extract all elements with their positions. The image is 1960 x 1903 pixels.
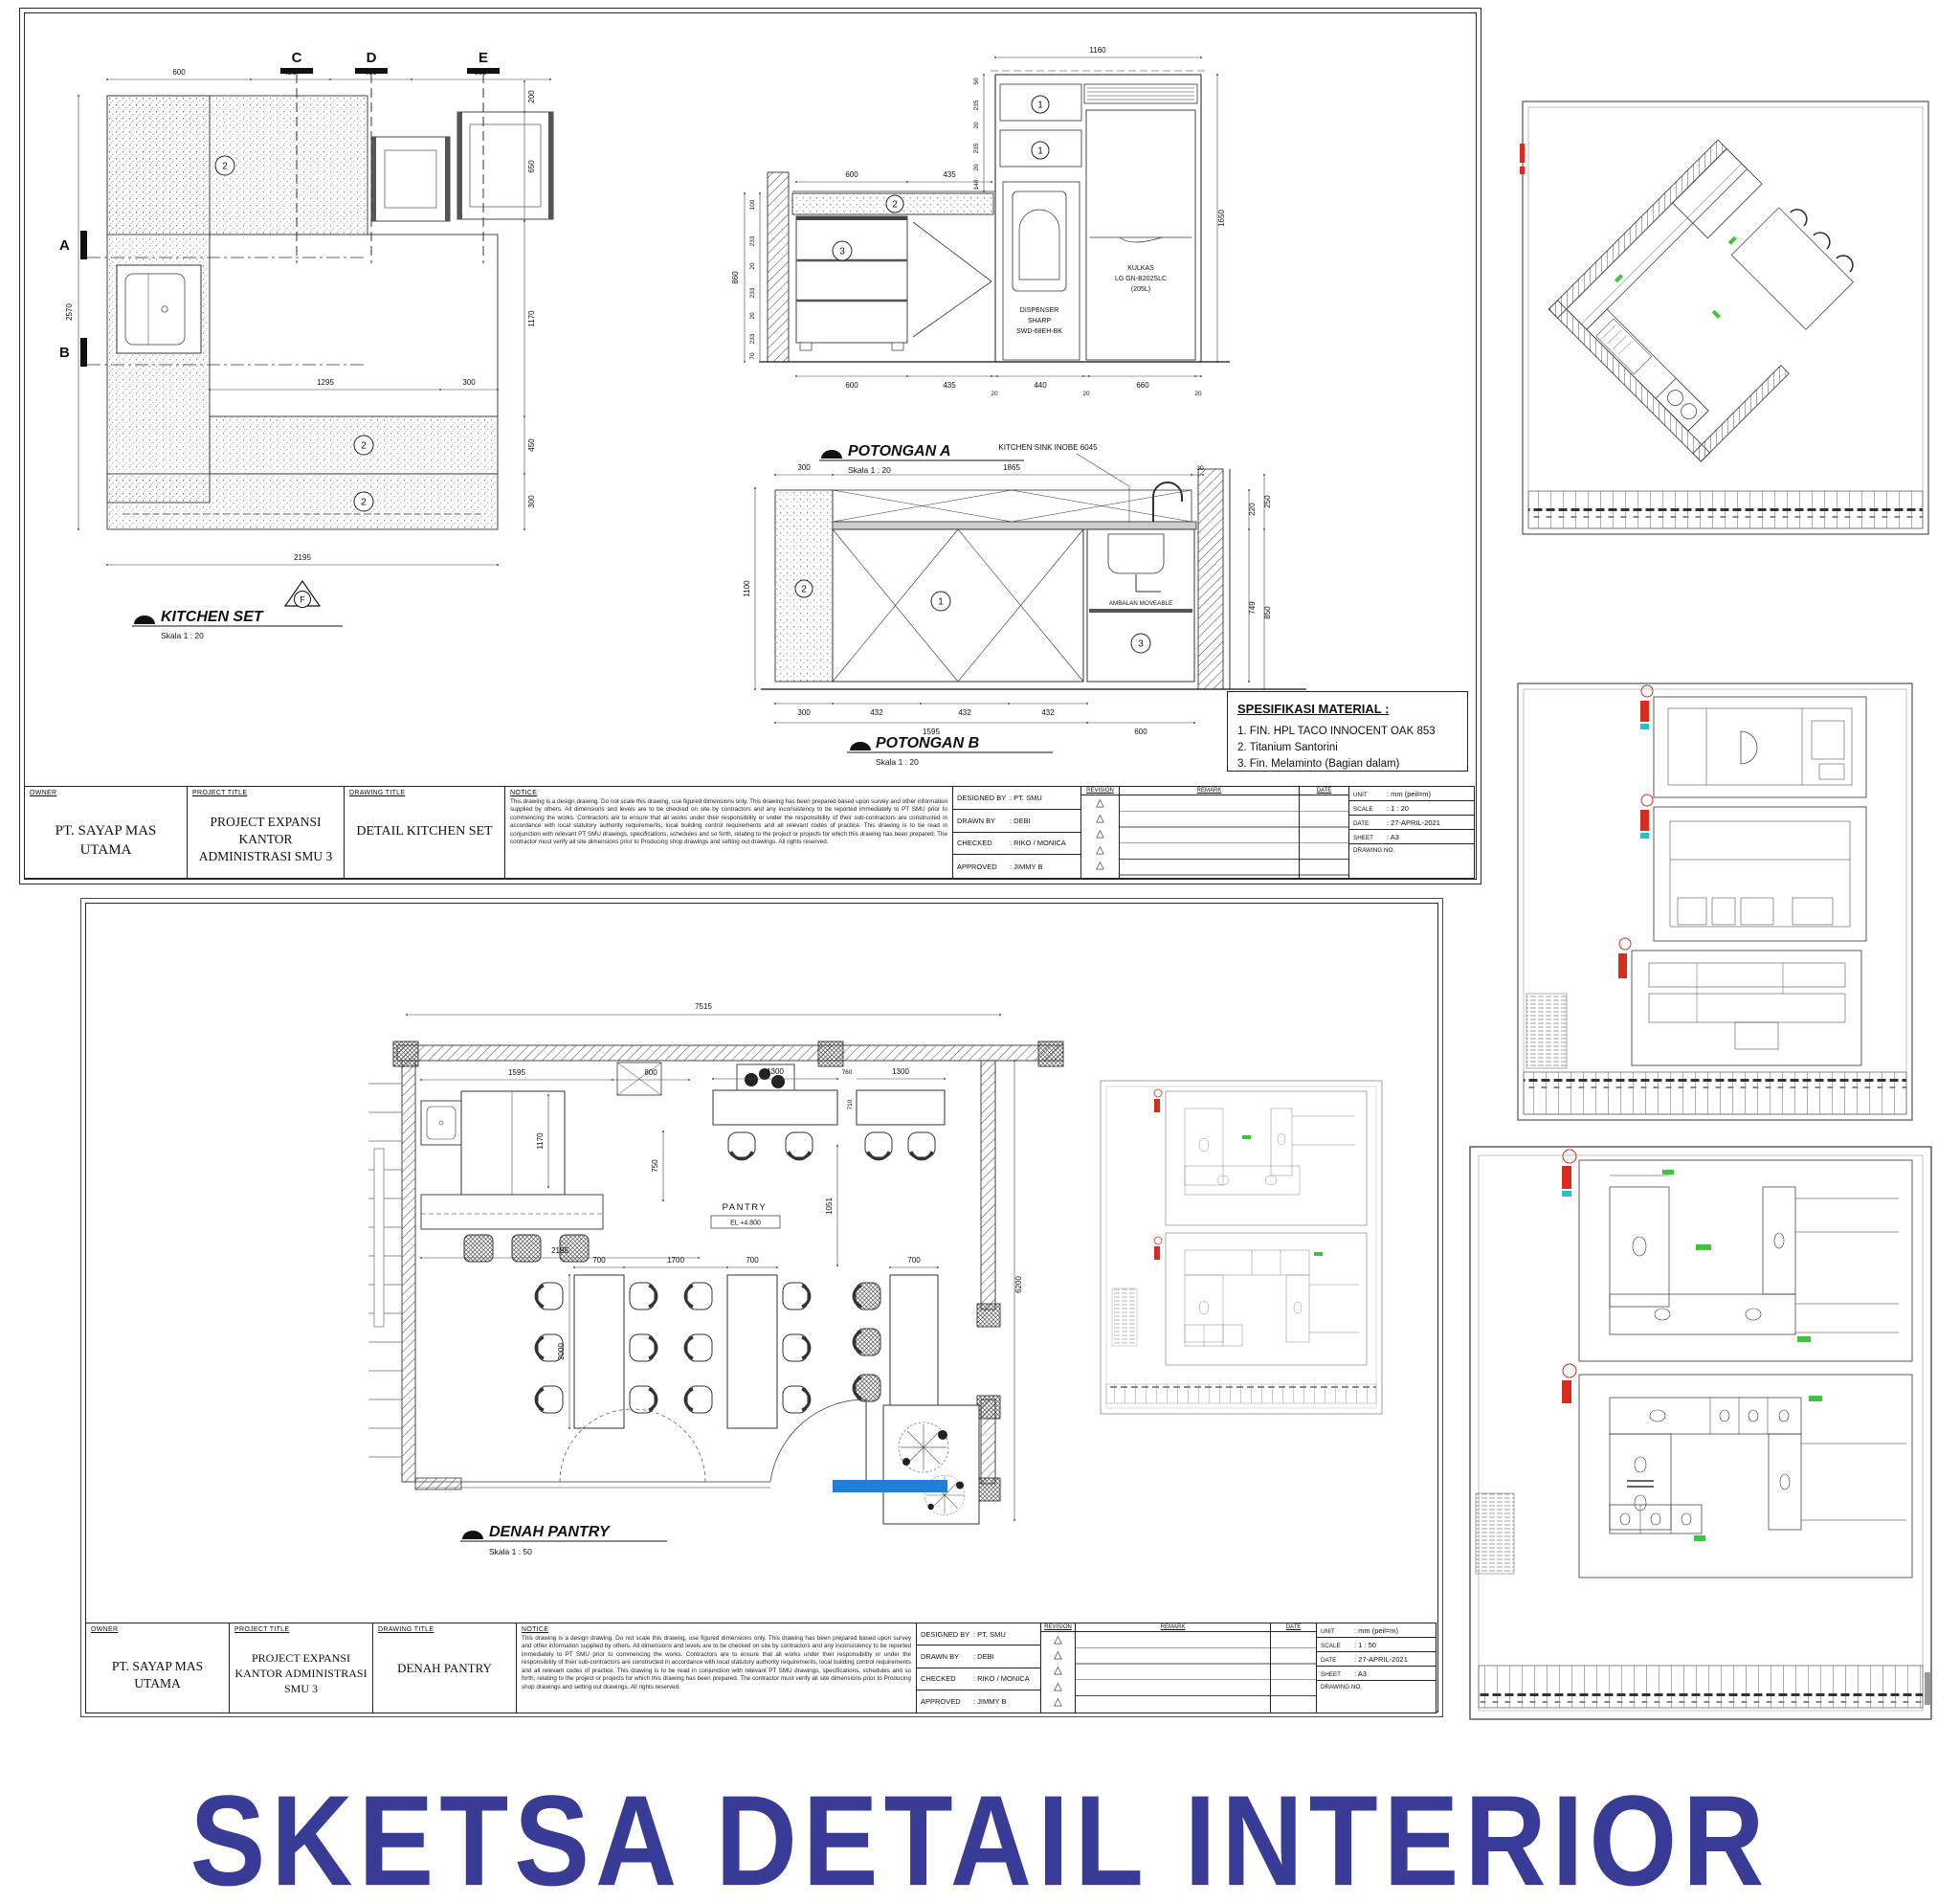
view-title-dot-icon bbox=[134, 616, 155, 624]
svg-text:650: 650 bbox=[527, 160, 536, 173]
project-title-label: PROJECT TITLE bbox=[192, 790, 339, 796]
revision-triangle-icon: △ bbox=[1081, 842, 1119, 858]
revision-triangle-icon: △ bbox=[1081, 826, 1119, 841]
signature-column: DESIGNED BY: PT. SMU DRAWN BY: DEBI CHEC… bbox=[953, 787, 1081, 878]
svg-text:700: 700 bbox=[746, 1256, 759, 1265]
kitchen-counter-group bbox=[421, 1091, 603, 1262]
drawing-title-label: DRAWING TITLE bbox=[349, 790, 500, 796]
view-title-dot-icon bbox=[850, 742, 871, 750]
svg-text:235: 235 bbox=[973, 100, 980, 110]
spesifikasi-item: 1. FIN. HPL TACO INNOCENT OAK 853 bbox=[1237, 724, 1458, 740]
svg-text:1170: 1170 bbox=[527, 310, 536, 327]
svg-text:435: 435 bbox=[283, 68, 297, 77]
remark-column: REMARK bbox=[1076, 1623, 1271, 1713]
micro-text-box bbox=[1526, 994, 1567, 1068]
denah-pantry-plan-view: PANTRY EL +4.800 7515 1595 800 1300 bbox=[330, 988, 1096, 1562]
svg-text:50: 50 bbox=[973, 78, 980, 85]
revision-column: REVISION △△ △△ △ bbox=[1041, 1623, 1076, 1713]
svg-text:1100: 1100 bbox=[743, 580, 751, 597]
svg-text:1295: 1295 bbox=[317, 378, 334, 387]
svg-text:LG GN-B202SLC: LG GN-B202SLC bbox=[1115, 276, 1167, 282]
right-wall bbox=[1198, 469, 1223, 689]
window-mullions bbox=[368, 1084, 402, 1457]
svg-text:PANTRY: PANTRY bbox=[723, 1202, 768, 1213]
svg-text:432: 432 bbox=[1041, 708, 1055, 717]
svg-text:Skala 1 : 50: Skala 1 : 50 bbox=[489, 1547, 532, 1556]
signature-column: DESIGNED BY: PT. SMU DRAWN BY: DEBI CHEC… bbox=[917, 1623, 1041, 1713]
section-marker-f: F bbox=[285, 581, 320, 608]
svg-text:6200: 6200 bbox=[1014, 1276, 1023, 1293]
bar-counters bbox=[713, 1090, 945, 1159]
sink-symbol bbox=[117, 265, 201, 353]
svg-text:2: 2 bbox=[361, 498, 367, 508]
poster-canvas: C D E A B 2 2 2 bbox=[0, 0, 1960, 1903]
project-title-line2: KANTOR ADMINISTRASI SMU 3 bbox=[192, 831, 339, 865]
revision-column: REVISION △ △ △ △ △ bbox=[1081, 787, 1120, 878]
svg-text:1300: 1300 bbox=[767, 1067, 784, 1076]
upper-cabinets bbox=[371, 112, 553, 221]
svg-text:F: F bbox=[300, 595, 305, 605]
poster-title: SKETSA DETAIL INTERIOR bbox=[190, 1767, 1771, 1903]
svg-text:2195: 2195 bbox=[551, 1246, 568, 1255]
title-strip bbox=[1524, 1072, 1906, 1114]
drawing-title-value: DETAIL KITCHEN SET bbox=[349, 823, 500, 841]
left-base-cabinet bbox=[768, 172, 995, 362]
svg-text:D: D bbox=[367, 50, 377, 66]
titleblock-sheet2: OWNER PT. SAYAP MAS UTAMA PROJECT TITLE … bbox=[85, 1623, 1437, 1713]
svg-text:300: 300 bbox=[527, 495, 536, 508]
svg-text:20: 20 bbox=[749, 262, 756, 270]
svg-text:1650: 1650 bbox=[1217, 210, 1226, 227]
svg-text:EL +4.800: EL +4.800 bbox=[730, 1220, 761, 1227]
svg-text:435: 435 bbox=[943, 381, 956, 390]
countertop bbox=[833, 522, 1196, 529]
svg-text:710: 710 bbox=[847, 1099, 854, 1109]
svg-text:235: 235 bbox=[973, 143, 980, 153]
island-void bbox=[210, 235, 498, 416]
svg-text:20: 20 bbox=[749, 312, 756, 320]
planter-trees bbox=[833, 1405, 979, 1524]
svg-text:SHARP: SHARP bbox=[1028, 318, 1051, 325]
svg-text:20: 20 bbox=[991, 391, 998, 397]
room-label: PANTRY EL +4.800 bbox=[711, 1202, 780, 1228]
owner-value: PT. SAYAP MAS UTAMA bbox=[91, 1658, 224, 1692]
svg-text:1595: 1595 bbox=[508, 1068, 525, 1077]
svg-text:233: 233 bbox=[749, 235, 756, 246]
svg-text:600: 600 bbox=[845, 381, 858, 390]
svg-text:7515: 7515 bbox=[695, 1002, 712, 1011]
svg-text:70: 70 bbox=[749, 352, 756, 360]
micro-text-box bbox=[1112, 1288, 1137, 1346]
spesifikasi-item: 3. Fin. Melaminto (Bagian dalam) bbox=[1237, 756, 1458, 772]
notice-label: NOTICE bbox=[510, 790, 947, 796]
svg-text:3: 3 bbox=[839, 247, 845, 257]
svg-text:1160: 1160 bbox=[1089, 46, 1106, 55]
dining-tables bbox=[536, 1275, 938, 1428]
svg-text:750: 750 bbox=[651, 1159, 659, 1173]
view-title-dot-icon bbox=[462, 1531, 483, 1539]
svg-text:KITCHEN SET: KITCHEN SET bbox=[161, 609, 264, 625]
svg-text:850: 850 bbox=[1263, 606, 1272, 619]
base-cabinet bbox=[833, 529, 1083, 682]
svg-text:450: 450 bbox=[527, 438, 536, 452]
svg-text:600: 600 bbox=[172, 68, 186, 77]
svg-text:480: 480 bbox=[364, 68, 377, 77]
svg-text:DENAH PANTRY: DENAH PANTRY bbox=[489, 1524, 611, 1540]
svg-text:1051: 1051 bbox=[825, 1198, 834, 1215]
svg-text:749: 749 bbox=[1248, 601, 1257, 615]
svg-text:432: 432 bbox=[958, 708, 971, 717]
cad-panel-counter-plans bbox=[1466, 1141, 1937, 1727]
svg-text:140: 140 bbox=[973, 179, 980, 190]
svg-text:760: 760 bbox=[842, 1069, 853, 1076]
micro-text-box bbox=[1476, 1493, 1514, 1574]
svg-text:200: 200 bbox=[527, 90, 536, 103]
svg-text:AMBALAN MOVEABLE: AMBALAN MOVEABLE bbox=[1109, 600, 1173, 607]
spesifikasi-title: SPESIFIKASI MATERIAL : bbox=[1237, 700, 1458, 719]
red-edge-mark bbox=[1520, 167, 1525, 174]
svg-text:SWD-68EH-BK: SWD-68EH-BK bbox=[1016, 328, 1062, 335]
info-column: UNIT: mm (peil=m) SCALE: 1 : 20 DATE: 27… bbox=[1349, 787, 1474, 878]
spesifikasi-item: 2. Titanium Santorini bbox=[1237, 740, 1458, 756]
svg-text:2: 2 bbox=[222, 162, 228, 172]
spesifikasi-material-box: SPESIFIKASI MATERIAL : 1. FIN. HPL TACO … bbox=[1227, 691, 1468, 772]
kitchen-set-plan-view: C D E A B 2 2 2 bbox=[48, 43, 555, 646]
svg-text:30: 30 bbox=[1196, 465, 1204, 472]
svg-text:20: 20 bbox=[973, 164, 980, 171]
svg-text:B: B bbox=[59, 345, 70, 361]
info-column: UNIT: mm (peil=m) SCALE: 1 : 50 DATE: 27… bbox=[1317, 1623, 1436, 1713]
edge-text-mark bbox=[1925, 1672, 1930, 1705]
potongan-a-view: DISPENSER SHARP SWD-68EH-BK KULKAS LG GN… bbox=[708, 29, 1249, 483]
red-edge-mark bbox=[1520, 144, 1525, 163]
svg-text:(205L): (205L) bbox=[1131, 286, 1150, 293]
owner-value: PT. SAYAP MAS UTAMA bbox=[30, 821, 182, 861]
svg-text:700: 700 bbox=[907, 1256, 921, 1265]
svg-text:300: 300 bbox=[797, 463, 811, 472]
svg-text:432: 432 bbox=[870, 708, 883, 717]
svg-text:2: 2 bbox=[361, 441, 367, 452]
sink-callout: KITCHEN SINK INOBE 6045 bbox=[998, 443, 1129, 526]
svg-text:E: E bbox=[479, 50, 488, 66]
svg-text:2195: 2195 bbox=[294, 553, 311, 562]
svg-text:1300: 1300 bbox=[892, 1067, 909, 1076]
svg-text:1170: 1170 bbox=[536, 1132, 545, 1150]
svg-text:1: 1 bbox=[1037, 101, 1043, 111]
title-strip bbox=[1528, 491, 1923, 528]
drawing-title-value: DENAH PANTRY bbox=[378, 1660, 511, 1677]
svg-text:3: 3 bbox=[1138, 639, 1144, 650]
date-column: DATE bbox=[1271, 1623, 1317, 1713]
svg-text:2000: 2000 bbox=[557, 1343, 566, 1360]
svg-text:800: 800 bbox=[644, 1068, 657, 1077]
svg-text:1865: 1865 bbox=[1003, 463, 1020, 472]
svg-text:220: 220 bbox=[1248, 503, 1257, 516]
svg-text:435: 435 bbox=[943, 170, 956, 179]
inset-cad-sheet bbox=[1099, 1078, 1386, 1419]
svg-text:250: 250 bbox=[1263, 495, 1272, 508]
svg-text:1700: 1700 bbox=[667, 1256, 684, 1265]
svg-text:C: C bbox=[292, 50, 302, 66]
svg-text:2570: 2570 bbox=[65, 303, 74, 321]
revision-triangle-icon: △ bbox=[1081, 858, 1119, 873]
view-title-denah-pantry: DENAH PANTRY Skala 1 : 50 bbox=[460, 1524, 667, 1556]
svg-text:100: 100 bbox=[749, 199, 756, 210]
title-strip bbox=[1106, 1384, 1376, 1403]
svg-text:600: 600 bbox=[845, 170, 858, 179]
svg-text:660: 660 bbox=[1136, 381, 1149, 390]
svg-text:2: 2 bbox=[801, 585, 807, 595]
blue-highlight-strip bbox=[833, 1480, 947, 1492]
svg-text:600: 600 bbox=[1134, 728, 1147, 736]
notice-text: This drawing is a design drawing. Do not… bbox=[510, 798, 947, 847]
fridge bbox=[1084, 84, 1197, 360]
svg-text:POTONGAN B: POTONGAN B bbox=[876, 735, 979, 751]
svg-text:KULKAS: KULKAS bbox=[1127, 265, 1154, 272]
svg-text:Skala 1 : 20: Skala 1 : 20 bbox=[876, 757, 919, 767]
svg-text:20: 20 bbox=[973, 122, 980, 129]
svg-text:700: 700 bbox=[592, 1256, 606, 1265]
view-title-kitchen-set: KITCHEN SET Skala 1 : 20 bbox=[132, 609, 343, 640]
revision-triangle-icon: △ bbox=[1081, 795, 1119, 811]
view-title-potongan-b: POTONGAN B Skala 1 : 20 bbox=[847, 735, 1053, 767]
svg-text:300: 300 bbox=[462, 378, 476, 387]
cad-panel-rotated-plan bbox=[1520, 94, 1933, 544]
remark-column: REMARK bbox=[1120, 787, 1300, 878]
project-title-line1: PROJECT EXPANSI bbox=[192, 814, 339, 831]
svg-text:680: 680 bbox=[474, 68, 487, 77]
title-strip bbox=[1479, 1666, 1923, 1708]
revision-triangle-icon: △ bbox=[1081, 811, 1119, 826]
svg-text:300: 300 bbox=[797, 708, 811, 717]
svg-text:233: 233 bbox=[749, 333, 756, 344]
svg-text:860: 860 bbox=[731, 271, 740, 284]
svg-text:440: 440 bbox=[1034, 381, 1047, 390]
date-column: DATE bbox=[1300, 787, 1349, 878]
svg-text:20: 20 bbox=[1082, 391, 1090, 397]
svg-text:DISPENSER: DISPENSER bbox=[1020, 307, 1058, 314]
svg-text:1: 1 bbox=[938, 597, 944, 608]
svg-text:Skala 1 : 20: Skala 1 : 20 bbox=[161, 631, 204, 640]
owner-label: OWNER bbox=[30, 790, 182, 796]
svg-text:20: 20 bbox=[1194, 391, 1202, 397]
titleblock-sheet1: OWNER PT. SAYAP MAS UTAMA PROJECT TITLE … bbox=[24, 786, 1475, 879]
svg-text:KITCHEN SINK INOBE 6045: KITCHEN SINK INOBE 6045 bbox=[998, 443, 1098, 452]
backsplash-panel bbox=[833, 490, 1192, 522]
svg-text:2: 2 bbox=[892, 200, 898, 211]
svg-text:1: 1 bbox=[1037, 146, 1043, 157]
cad-panel-elevations bbox=[1515, 678, 1919, 1128]
svg-text:233: 233 bbox=[749, 287, 756, 298]
svg-text:A: A bbox=[59, 237, 70, 254]
